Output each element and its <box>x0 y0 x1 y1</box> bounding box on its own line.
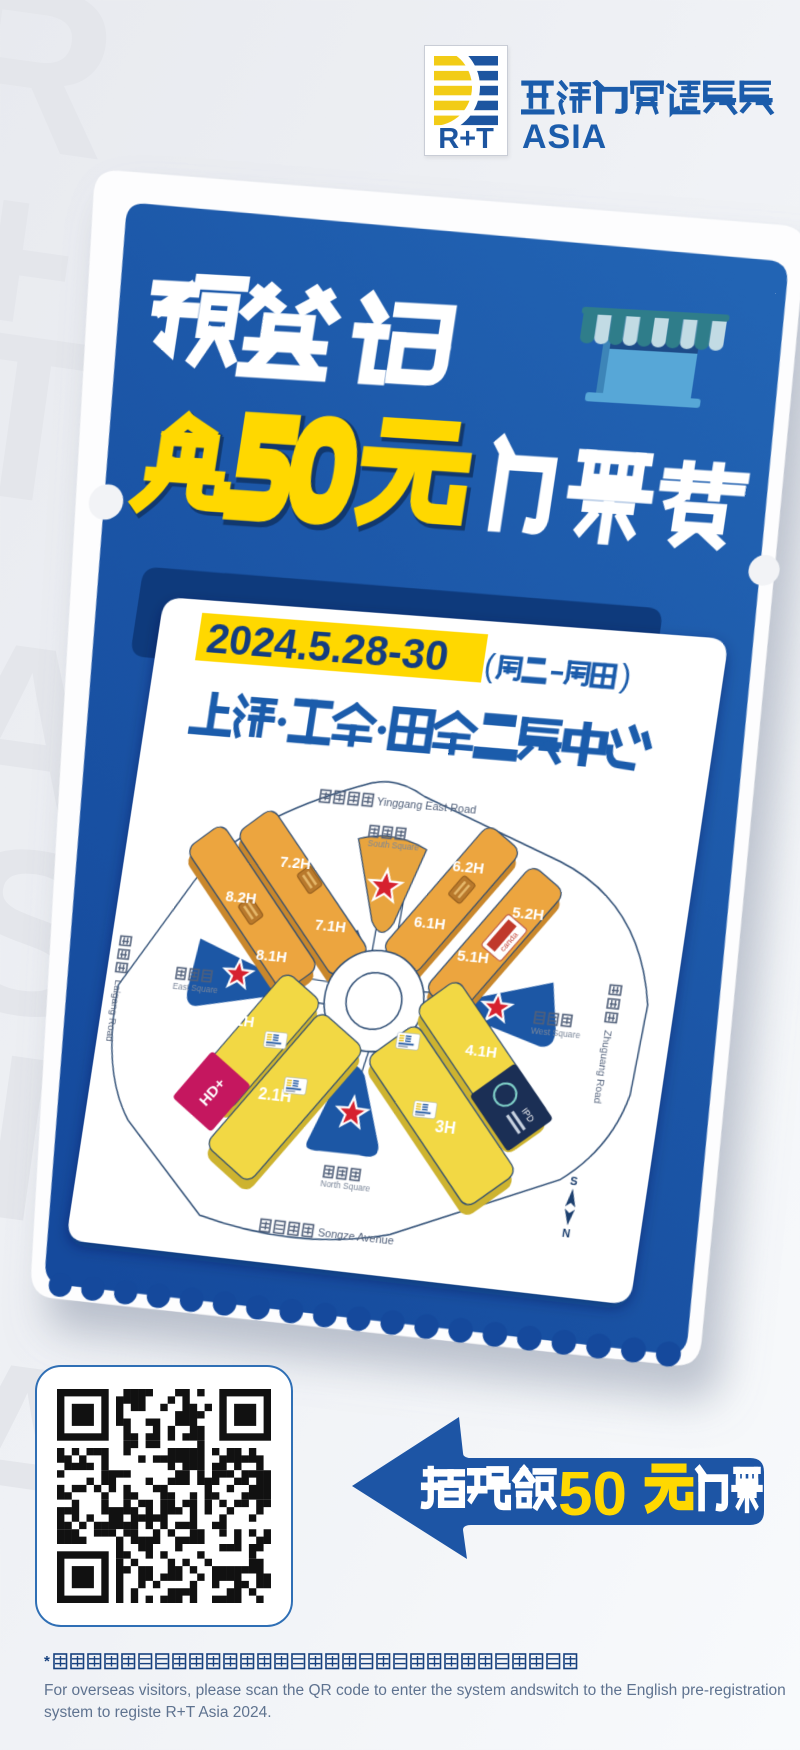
svg-text:7.2H: 7.2H <box>279 854 312 873</box>
svg-text:7.1H: 7.1H <box>314 917 348 937</box>
svg-text:5.1H: 5.1H <box>456 947 490 967</box>
svg-text:4.1H: 4.1H <box>464 1042 498 1062</box>
svg-text:3H: 3H <box>434 1119 457 1139</box>
svg-text:50: 50 <box>558 1460 627 1529</box>
svg-text:6.2H: 6.2H <box>451 858 485 878</box>
svg-text:1.1H: 1.1H <box>222 1012 255 1032</box>
svg-text:8.2H: 8.2H <box>224 888 257 907</box>
svg-text:6.1H: 6.1H <box>413 914 447 934</box>
svg-text:8.1H: 8.1H <box>255 946 288 966</box>
svg-text:*: * <box>44 1653 50 1670</box>
svg-text:5.2H: 5.2H <box>511 904 545 924</box>
